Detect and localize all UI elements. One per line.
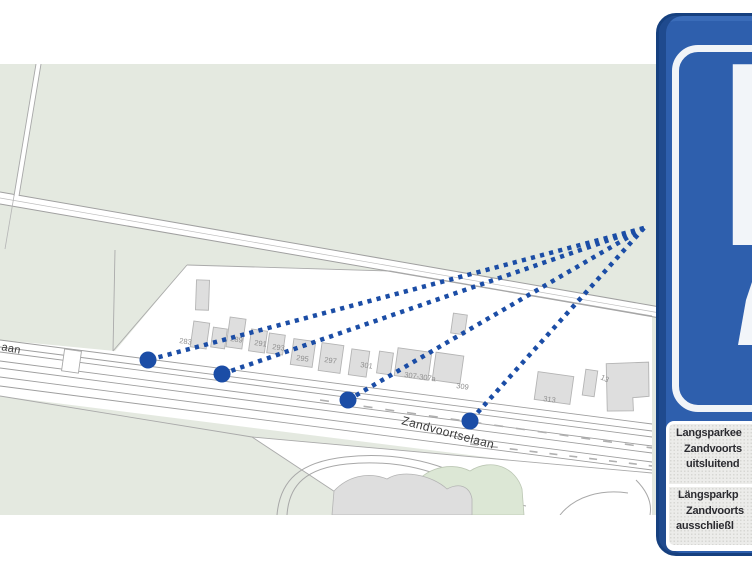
figure-page: Zandvoortselaanaan 283289291293295297301… [0,0,752,564]
plate-text-line: ausschließl [676,520,734,532]
house-number-label: 313 [543,394,557,405]
marker-dot [340,392,357,409]
map-svg: Zandvoortselaanaan 283289291293295297301… [0,64,752,515]
house-number-label: 297 [324,355,338,366]
house-number-label: 301 [360,360,374,371]
house-number-label: 295 [296,353,310,364]
sign-subplate-dutch: Langsparkee Zandvoorts uitsluitend [669,424,752,484]
platform-rect [62,349,82,373]
sign-inner-border [672,45,752,412]
marker-dot [214,366,231,383]
plate-text-line: Zandvoorts [686,505,744,517]
house-number-label: 309 [456,381,470,392]
sign-text-plate: Langsparkee Zandvoorts uitsluitend Längs… [666,421,752,551]
parking-sign: P Langsparkee Zandvoorts uitsluitend Län… [656,13,752,556]
house-number-label: 293 [272,342,286,353]
marker-dot [462,413,479,430]
sign-subplate-german: Längsparkp Zandvoorts ausschließl [669,487,752,545]
plate-text-line: Längsparkp [678,489,738,501]
plate-text-line: Zandvoorts [684,443,742,455]
house-number-label: 291 [254,338,268,349]
house-number-label: 283 [179,336,193,347]
marker-dot [140,352,157,369]
plate-text-line: uitsluitend [686,458,739,470]
plate-text-line: Langsparkee [676,427,742,439]
map-canvas: Zandvoortselaanaan 283289291293295297301… [0,64,752,515]
